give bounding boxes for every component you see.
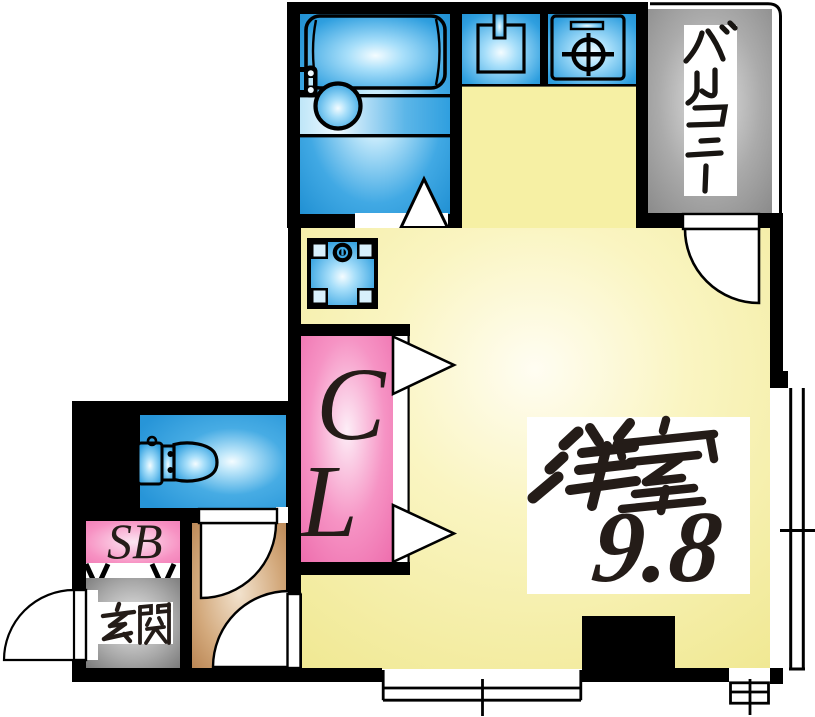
svg-text:9.8: 9.8: [588, 491, 727, 604]
svg-text:SB: SB: [107, 513, 163, 569]
svg-text:L: L: [298, 444, 358, 559]
